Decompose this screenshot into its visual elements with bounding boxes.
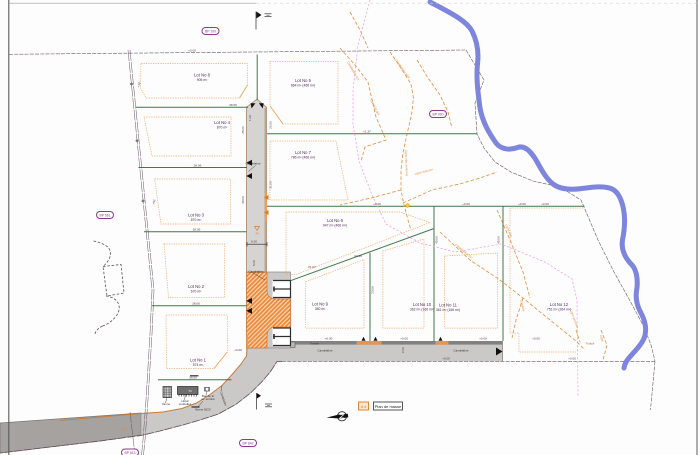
svg-text:6.00: 6.00	[251, 240, 257, 244]
svg-text:+0.00: +0.00	[442, 357, 450, 361]
svg-text:870 m²: 870 m²	[217, 126, 228, 130]
svg-text:Trottoir: Trottoir	[310, 341, 319, 345]
svg-text:Voirie: Voirie	[256, 309, 260, 317]
svg-text:Borne 0023: Borne 0023	[196, 408, 211, 412]
svg-text:BP 561: BP 561	[99, 214, 110, 218]
svg-text:Lot No 4: Lot No 4	[214, 120, 231, 125]
svg-text:40.06: 40.06	[354, 254, 362, 258]
svg-text:+0.00: +0.00	[518, 202, 526, 206]
svg-text:38.06: 38.06	[194, 163, 202, 167]
svg-text:Lot No 1: Lot No 1	[190, 358, 207, 363]
svg-text:BP 100: BP 100	[205, 30, 216, 34]
svg-text:+0.00: +0.00	[532, 337, 540, 341]
svg-text:+0.00: +0.00	[541, 202, 549, 206]
svg-text:PI: PI	[256, 232, 259, 236]
svg-text:Conduite gaz: Conduite gaz	[369, 99, 381, 117]
svg-text:av. enrobé: av. enrobé	[201, 397, 215, 401]
svg-text:+0.00: +0.00	[234, 348, 242, 352]
svg-text:23.06: 23.06	[371, 286, 375, 294]
svg-text:751 m² (264 m²): 751 m² (264 m²)	[547, 308, 571, 312]
svg-text:Ligne elec: Ligne elec	[504, 224, 514, 239]
svg-text:+51: +51	[152, 199, 157, 205]
svg-text:Conduite: Conduite	[519, 299, 526, 312]
svg-text:Lot No 11: Lot No 11	[439, 303, 458, 308]
svg-text:45.06: 45.06	[497, 236, 501, 244]
svg-text:BP 000: BP 000	[432, 113, 443, 117]
svg-text:poubelles: poubelles	[179, 402, 192, 406]
svg-text:Lot No 9: Lot No 9	[312, 302, 329, 307]
svg-text:38.06: 38.06	[241, 196, 245, 204]
svg-text:38.06: 38.06	[229, 103, 237, 107]
svg-text:45.00: 45.00	[241, 126, 245, 134]
svg-text:5.06: 5.06	[252, 260, 256, 266]
svg-text:Lot No 5: Lot No 5	[295, 78, 312, 83]
svg-text:45.06: 45.06	[435, 236, 439, 244]
svg-text:+0.00: +0.00	[400, 337, 408, 341]
svg-text:670 m²: 670 m²	[191, 290, 202, 294]
svg-text:905 m²: 905 m²	[197, 78, 208, 82]
svg-text:864 m² (466 m²): 864 m² (466 m²)	[291, 84, 315, 88]
svg-text:Candelabre: Candelabre	[318, 349, 333, 353]
svg-text:+0.00: +0.00	[373, 202, 381, 206]
svg-text:Ligne: Ligne	[599, 334, 605, 342]
svg-text:Canalisation AEP: Canalisation AEP	[394, 58, 411, 79]
svg-text:38.06: 38.06	[193, 228, 201, 232]
svg-text:362 m² (166 m²): 362 m² (166 m²)	[410, 308, 434, 312]
svg-text:Lot No 3: Lot No 3	[188, 213, 205, 218]
svg-text:Canalisation EU: Canalisation EU	[454, 243, 473, 260]
svg-text:1.06: 1.06	[248, 115, 252, 121]
svg-text:Trottoir: Trottoir	[585, 341, 594, 345]
svg-text:+0.00: +0.00	[462, 202, 470, 206]
svg-text:A 4: A 4	[361, 404, 368, 409]
svg-text:+0.00: +0.00	[188, 48, 196, 52]
svg-text:Lot No 6: Lot No 6	[327, 218, 344, 223]
svg-text:+0.00: +0.00	[479, 337, 487, 341]
svg-text:Vanne: Vanne	[162, 402, 171, 406]
svg-text:+0.00: +0.00	[568, 357, 576, 361]
svg-text:38.06: 38.06	[192, 302, 200, 306]
svg-text:Lot No 7: Lot No 7	[295, 150, 312, 155]
svg-text:350 m²: 350 m²	[315, 307, 326, 311]
svg-text:947 m² (466 m²): 947 m² (466 m²)	[323, 224, 347, 228]
svg-text:361 m² (166 m²): 361 m² (166 m²)	[436, 308, 460, 312]
svg-text:870 m²: 870 m²	[191, 218, 202, 222]
svg-text:6.00: 6.00	[401, 347, 405, 353]
svg-text:Candelabre: Candelabre	[454, 349, 469, 353]
svg-text:Lot No 10: Lot No 10	[413, 302, 432, 307]
svg-text:38.06: 38.06	[189, 376, 197, 380]
svg-text:Lot No 8: Lot No 8	[194, 73, 211, 78]
svg-text:+411: +411	[121, 427, 128, 431]
svg-text:+0.00: +0.00	[325, 337, 333, 341]
svg-text:+18: +18	[137, 82, 142, 88]
svg-text:Lot No 2: Lot No 2	[188, 284, 205, 289]
svg-text:786 m² (466 m²): 786 m² (466 m²)	[291, 156, 315, 160]
svg-text:574 m²: 574 m²	[193, 363, 204, 367]
svg-text:Plan de masse: Plan de masse	[375, 404, 402, 409]
svg-text:21.07: 21.07	[308, 265, 316, 269]
svg-text:Candelabre: Candelabre	[249, 270, 264, 274]
svg-text:+1.37: +1.37	[363, 130, 371, 134]
svg-text:20.06: 20.06	[269, 121, 273, 129]
svg-text:Ligne elec aerienne: Ligne elec aerienne	[404, 150, 409, 177]
svg-text:Ligne aerienne: Ligne aerienne	[569, 309, 580, 329]
svg-text:Lot No 12: Lot No 12	[550, 302, 569, 307]
svg-text:BP 613: BP 613	[124, 451, 135, 455]
svg-text:31.06: 31.06	[269, 181, 273, 189]
svg-text:BP 642: BP 642	[242, 442, 253, 446]
svg-text:Canalisation EU: Canalisation EU	[346, 61, 360, 82]
svg-text:Ligne telecom: Ligne telecom	[414, 167, 434, 176]
svg-text:Tri: Tri	[188, 389, 192, 393]
